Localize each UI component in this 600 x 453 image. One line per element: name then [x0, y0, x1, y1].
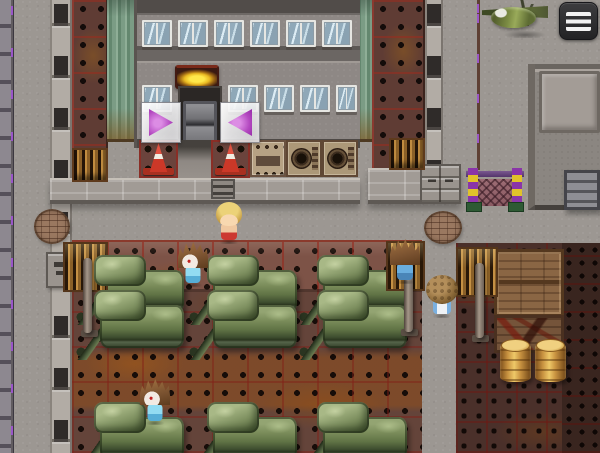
game-scene[interactable] — [0, 0, 600, 453]
tank-row3-c — [296, 402, 410, 453]
hamburger-icon — [566, 12, 591, 31]
helicopter — [482, 0, 560, 38]
grate-tile-left — [72, 148, 108, 182]
triangle-left-icon — [228, 109, 253, 137]
menu-button[interactable] — [559, 2, 598, 40]
crate-stack — [494, 249, 564, 317]
dark-floor-column — [562, 243, 600, 453]
window-row1-6 — [322, 20, 352, 47]
green-column-left — [107, 0, 134, 142]
speaker-box-1 — [286, 140, 322, 177]
npc-spiky-hair-3[interactable] — [138, 379, 172, 425]
window-row2-3 — [264, 85, 294, 112]
door-step — [177, 140, 212, 178]
tank-row2-b — [186, 290, 300, 360]
triangle-right-icon — [149, 109, 174, 137]
window-row1-5 — [286, 20, 316, 47]
npc-spiky-hair-2[interactable] — [388, 239, 422, 284]
manhole-left — [34, 209, 70, 244]
manhole-right — [424, 211, 462, 244]
npc-spiky-hair-1[interactable] — [176, 242, 210, 287]
left-wall-strip — [0, 0, 14, 453]
right-building-door[interactable] — [564, 170, 600, 210]
pipe-machine-3 — [456, 247, 498, 297]
window-row1-2 — [178, 20, 208, 47]
speaker-box-2 — [322, 140, 358, 177]
window-row2-4 — [300, 85, 330, 112]
grate-tile-right — [389, 138, 425, 170]
arrow-left-button[interactable] — [220, 102, 260, 143]
radio-box — [250, 140, 286, 177]
vent-box — [211, 179, 235, 199]
window-row1-1 — [142, 20, 172, 47]
traffic-cone-2 — [211, 140, 250, 178]
traffic-cone-1 — [139, 140, 178, 178]
barrel-1 — [500, 341, 531, 382]
window-row1-3 — [214, 20, 244, 47]
tank-row2-c — [296, 290, 410, 360]
right-building-panel — [539, 71, 600, 133]
pavement-seam — [477, 0, 480, 170]
arrow-right-button[interactable] — [141, 102, 181, 143]
window-row1-4 — [250, 20, 280, 47]
drawer-cabinet — [420, 164, 461, 204]
window-row2-5 — [336, 85, 357, 112]
npc-blonde[interactable] — [214, 202, 244, 244]
barrel-2 — [535, 341, 566, 382]
chain-gate — [466, 165, 524, 212]
tank-row3-b — [186, 402, 300, 453]
npc-afro-hair[interactable] — [424, 275, 460, 318]
